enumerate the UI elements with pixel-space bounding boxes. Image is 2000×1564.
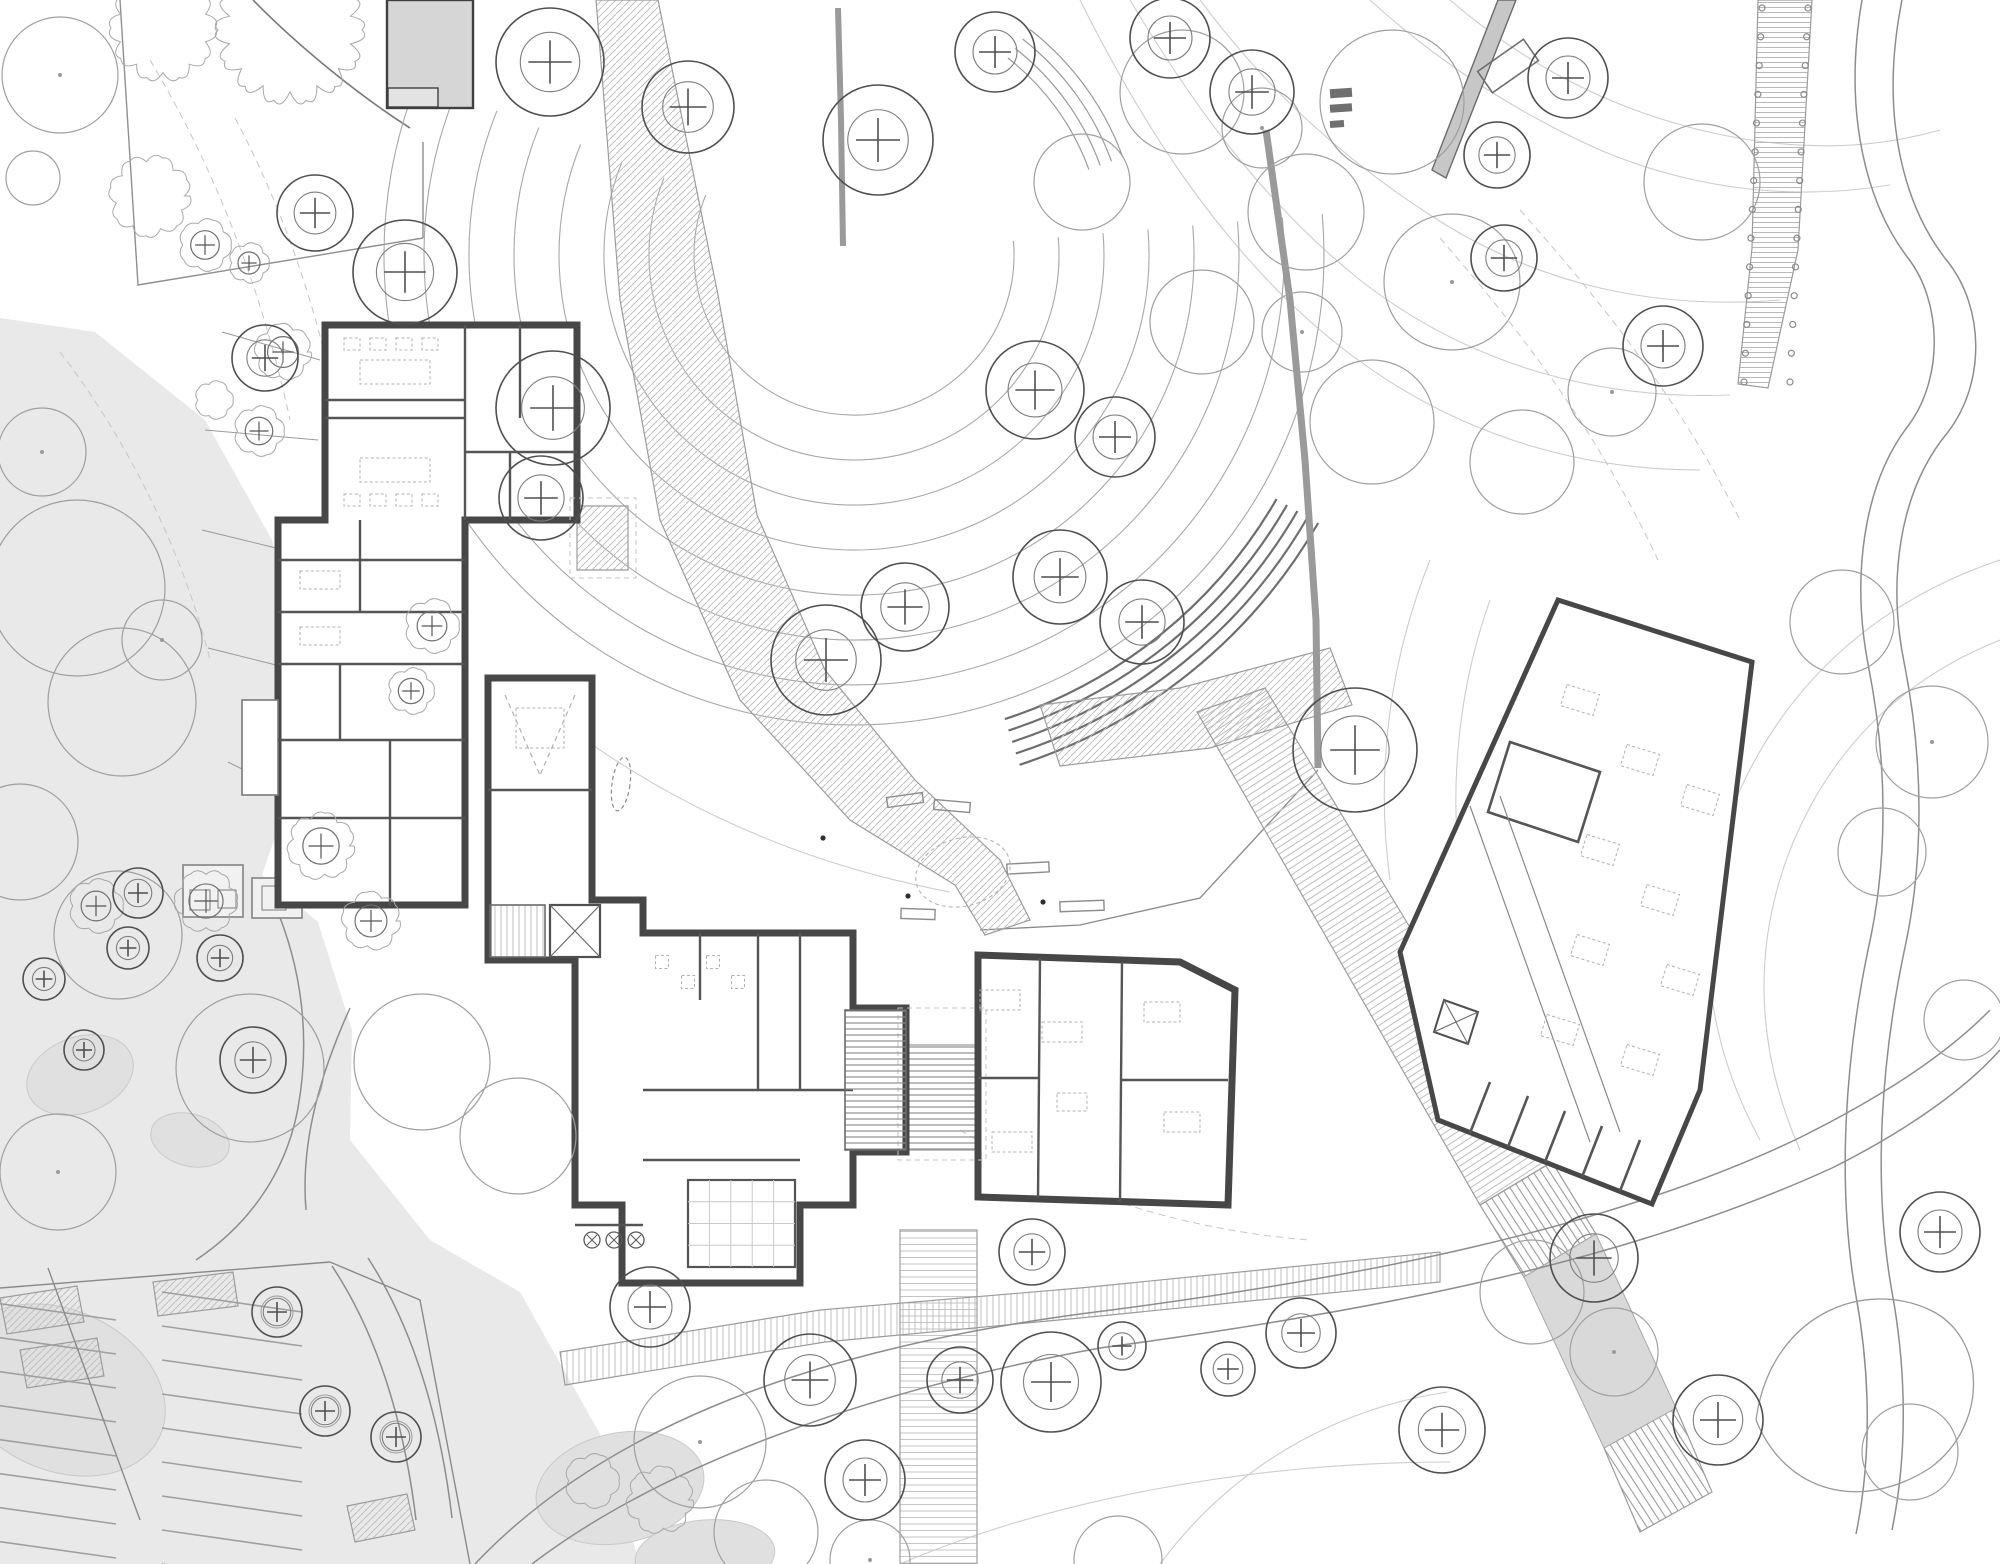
property-boundary xyxy=(120,0,423,285)
contour-line xyxy=(1160,1392,1447,1564)
breezeway-steps xyxy=(906,1045,978,1150)
existing-tree-canopy xyxy=(1120,30,1244,154)
deciduous-tree-outline xyxy=(196,381,233,420)
road-edge xyxy=(1845,0,1934,1534)
existing-tree-canopy xyxy=(1790,570,1894,674)
existing-tree-canopy xyxy=(1862,1404,1958,1500)
swale-dashed-line xyxy=(150,60,290,420)
wall-stub xyxy=(1330,103,1353,113)
bollard-dot xyxy=(820,835,825,840)
wall-stub xyxy=(1330,120,1344,128)
existing-tree-canopy xyxy=(1034,134,1130,230)
tree-trunk-dot xyxy=(698,1440,702,1444)
wall-stub xyxy=(1330,88,1353,99)
site-plan-page xyxy=(0,0,2000,1564)
tree-trunk-dot xyxy=(1930,740,1934,744)
bollard-dot xyxy=(1040,899,1045,904)
east-building-outline xyxy=(1400,600,1752,1204)
planting-bed-outline xyxy=(1756,1299,1974,1492)
boardwalk-post xyxy=(1788,350,1794,356)
tree-trunk-dot xyxy=(868,1558,872,1562)
terrace-southeast xyxy=(1040,648,1352,766)
deciduous-tree-outline xyxy=(215,0,364,104)
retaining-walls-layer xyxy=(838,0,1538,768)
courtyard-bench xyxy=(1060,900,1104,912)
existing-tree-canopy xyxy=(354,994,490,1130)
leaf-bench xyxy=(608,756,633,812)
tree-trunk-dot xyxy=(1612,1350,1616,1354)
courtyard-bench xyxy=(901,908,935,919)
stair-run xyxy=(490,905,545,957)
tree-trunk-dot xyxy=(1260,126,1264,130)
existing-tree-canopy xyxy=(1924,980,2000,1060)
existing-tree-canopy xyxy=(830,1520,910,1564)
tree-trunk-dot xyxy=(1450,280,1454,284)
boardwalk-post xyxy=(1787,379,1793,385)
courtyard-bench xyxy=(1007,862,1049,874)
lawn-step-arc xyxy=(1015,49,1100,166)
tree-trunk-dot xyxy=(56,1170,60,1174)
west-porch-deck xyxy=(242,700,278,795)
boardwalk xyxy=(1738,0,1812,388)
bollard-dot xyxy=(905,893,910,898)
deciduous-tree-outline xyxy=(109,0,216,81)
lawn-step-arc xyxy=(1023,39,1112,161)
lawn-step-arc xyxy=(1030,30,1123,158)
tree-trunk-dot xyxy=(160,638,164,642)
promenade-west xyxy=(596,0,1030,935)
existing-tree-canopy xyxy=(1150,270,1254,374)
deciduous-tree-outline xyxy=(109,155,191,237)
retaining-wall xyxy=(838,8,843,246)
buildings-layer xyxy=(242,0,1752,1283)
site-plan-drawing xyxy=(0,0,2000,1564)
existing-tree-canopy xyxy=(1248,154,1364,270)
tree-trunk-dot xyxy=(58,73,62,77)
leader-line xyxy=(222,332,320,360)
boardwalk-post xyxy=(1791,293,1797,299)
existing-building-notch xyxy=(388,88,438,107)
contour-line xyxy=(900,1462,1450,1564)
existing-tree-canopy xyxy=(1310,360,1434,484)
boardwalk-post xyxy=(1790,321,1796,327)
swale-dashed-line xyxy=(1440,238,1658,560)
lawn-terrace-arc xyxy=(694,195,1014,415)
contour-line xyxy=(1708,560,2000,1140)
existing-tree-canopy xyxy=(1074,1516,1162,1564)
swale-dashed-line xyxy=(1520,210,1740,520)
existing-tree-canopy xyxy=(1470,410,1574,514)
entry-deck xyxy=(577,506,628,570)
stair-run xyxy=(845,1010,906,1150)
tree-trunk-dot xyxy=(1610,390,1614,394)
existing-tree-canopy xyxy=(460,1078,576,1194)
tree-trunk-dot xyxy=(40,450,44,454)
tree-trunk-dot xyxy=(1300,330,1304,334)
contour-line xyxy=(1130,0,1730,395)
contour-line xyxy=(1384,560,1430,880)
existing-tree-canopy xyxy=(6,151,60,205)
